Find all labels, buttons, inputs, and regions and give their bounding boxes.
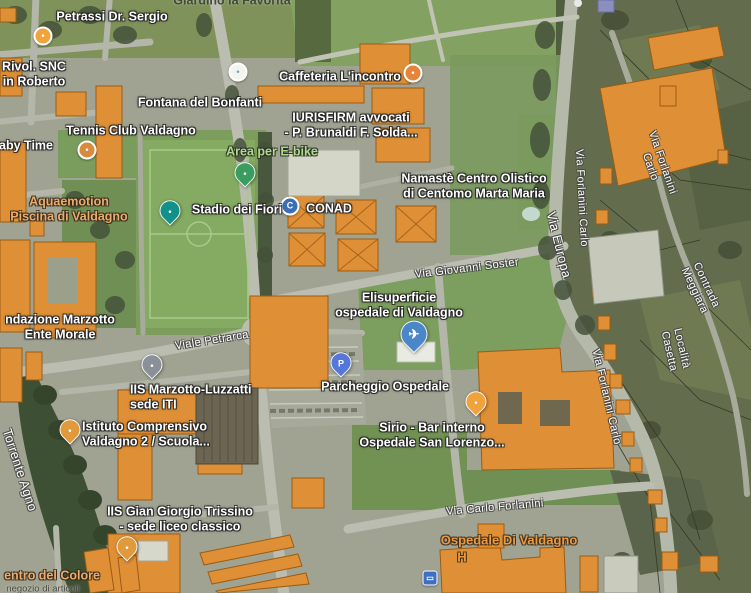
label-iis-gian-giorgio-trissino[interactable]: IIS Gian Giorgio Trissino - sede liceo c… bbox=[107, 504, 253, 534]
map-viewport[interactable]: ••••••C✈P••••▭Giardino la FavoritaPetras… bbox=[0, 0, 751, 593]
label-parcheggio-ospedale[interactable]: Parcheggio Ospedale bbox=[321, 380, 449, 395]
school-pin-trissino-icon-glyph: • bbox=[118, 537, 137, 556]
label-stadio-dei-fiori[interactable]: Stadio dei Fiori bbox=[192, 203, 282, 218]
label-area-per-e-bike[interactable]: Area per E-bike bbox=[226, 145, 318, 160]
label-via-forlanini-carlo-3: Via Forlanini Carlo bbox=[589, 348, 624, 446]
fountain-icon-glyph: • bbox=[236, 68, 239, 77]
label-rivol-snc[interactable]: Rivol. SNC in Roberto bbox=[2, 59, 66, 89]
label-via-europa: Via Europa bbox=[543, 210, 574, 280]
bus-stop-icon-glyph: ▭ bbox=[426, 574, 434, 582]
ebike-pin-icon-glyph: • bbox=[236, 163, 255, 182]
label-via-carlo-forlanini: Via Carlo Forlanini bbox=[446, 497, 545, 518]
conad-logo-icon[interactable]: C bbox=[281, 197, 300, 216]
parking-pin-icon-glyph: P bbox=[332, 353, 351, 372]
label-iis-marzotto-luzzatti[interactable]: IIS Marzotto-Luzzatti sede ITI bbox=[130, 382, 252, 412]
helipad-pin-icon[interactable]: ✈ bbox=[395, 315, 433, 353]
labels-overlay: ••••••C✈P••••▭Giardino la FavoritaPetras… bbox=[0, 0, 751, 593]
cafe-icon-glyph: • bbox=[411, 69, 414, 78]
label-negozio-di-articoli: negozio di articoli bbox=[6, 583, 79, 593]
bar-pin-sirio-icon-glyph: • bbox=[467, 392, 486, 411]
label-viale-petrarca: Viale Petrarca bbox=[174, 329, 250, 353]
fountain-icon[interactable]: • bbox=[229, 63, 248, 82]
label-iurisfirm[interactable]: IURISFIRM avvocati - P. Brunaldi F. Sold… bbox=[284, 110, 417, 140]
tennis-poi-icon-glyph: • bbox=[85, 146, 88, 155]
label-giardino-la-favorita[interactable]: Giardino la Favorita bbox=[173, 0, 290, 8]
label-via-giovanni-soster: Via Giovanni Soster bbox=[414, 256, 519, 282]
label-istituto-comprensivo[interactable]: Istituto Comprensivo Valdagno 2 / Scuola… bbox=[82, 419, 210, 449]
label-sirio-bar[interactable]: Sirio - Bar interno Ospedale San Lorenzo… bbox=[359, 420, 504, 450]
label-caffeteria-lincontro[interactable]: Caffeteria L'incontro bbox=[279, 70, 401, 85]
label-aquaemotion[interactable]: Aquaemotion Piscina di Valdagno bbox=[10, 194, 127, 224]
conad-logo-icon-glyph: C bbox=[287, 202, 294, 211]
school-pin-istituto-icon-glyph: • bbox=[61, 420, 80, 439]
school-pin-marzotto-icon[interactable]: • bbox=[137, 350, 167, 380]
stadium-pin-icon-glyph: • bbox=[161, 201, 180, 220]
helipad-pin-icon-glyph: ✈ bbox=[402, 322, 427, 347]
school-pin-marzotto-icon-glyph: • bbox=[143, 355, 162, 374]
label-fondazione-marzotto[interactable]: ndazione Marzotto Ente Morale bbox=[5, 312, 115, 342]
school-pin-trissino-icon[interactable]: • bbox=[112, 532, 142, 562]
label-petrassi-dr-sergio[interactable]: Petrassi Dr. Sergio bbox=[56, 10, 167, 25]
label-torrente-agno: Torrente Agno bbox=[0, 427, 41, 514]
bar-pin-sirio-icon[interactable]: • bbox=[461, 387, 491, 417]
label-via-forlanini-carlo-1: Via Forlanini Carlo bbox=[572, 149, 590, 247]
label-elisuperficie[interactable]: Elisuperficie ospedale di Valdagno bbox=[335, 290, 463, 320]
school-pin-istituto-icon[interactable]: • bbox=[55, 415, 85, 445]
cafe-icon[interactable]: • bbox=[404, 64, 423, 83]
bus-stop-icon[interactable]: ▭ bbox=[423, 571, 438, 586]
label-ospedale-di-valdagno[interactable]: Ospedale Di Valdagno bbox=[441, 532, 578, 547]
label-fontana-del-bonfanti[interactable]: Fontana del Bonfanti bbox=[138, 96, 262, 111]
label-baby-time[interactable]: aby Time bbox=[0, 139, 53, 154]
label-conad[interactable]: CONAD bbox=[306, 202, 352, 217]
stadium-pin-icon[interactable]: • bbox=[155, 196, 185, 226]
label-tennis-club-valdagno[interactable]: Tennis Club Valdagno bbox=[66, 124, 196, 139]
parking-pin-icon[interactable]: P bbox=[326, 348, 356, 378]
label-namaste[interactable]: Namastè Centro Olistico di Centomo Marta… bbox=[401, 171, 546, 201]
label-contrada-meggiara: Contrada Meggiara bbox=[677, 259, 722, 316]
petrassi-poi-icon-glyph: • bbox=[41, 32, 44, 41]
ebike-pin-icon[interactable]: • bbox=[230, 158, 260, 188]
label-centro-del-colore[interactable]: entro del Colore bbox=[4, 569, 100, 584]
label-localita-casetta: Località Casetta bbox=[654, 310, 696, 390]
tennis-poi-icon[interactable]: • bbox=[78, 141, 97, 160]
petrassi-poi-icon[interactable]: • bbox=[34, 27, 53, 46]
label-via-forlanini-carlo-2: Via Forlanini Carlo bbox=[628, 116, 683, 214]
label-hospital-h[interactable]: H bbox=[457, 549, 466, 564]
